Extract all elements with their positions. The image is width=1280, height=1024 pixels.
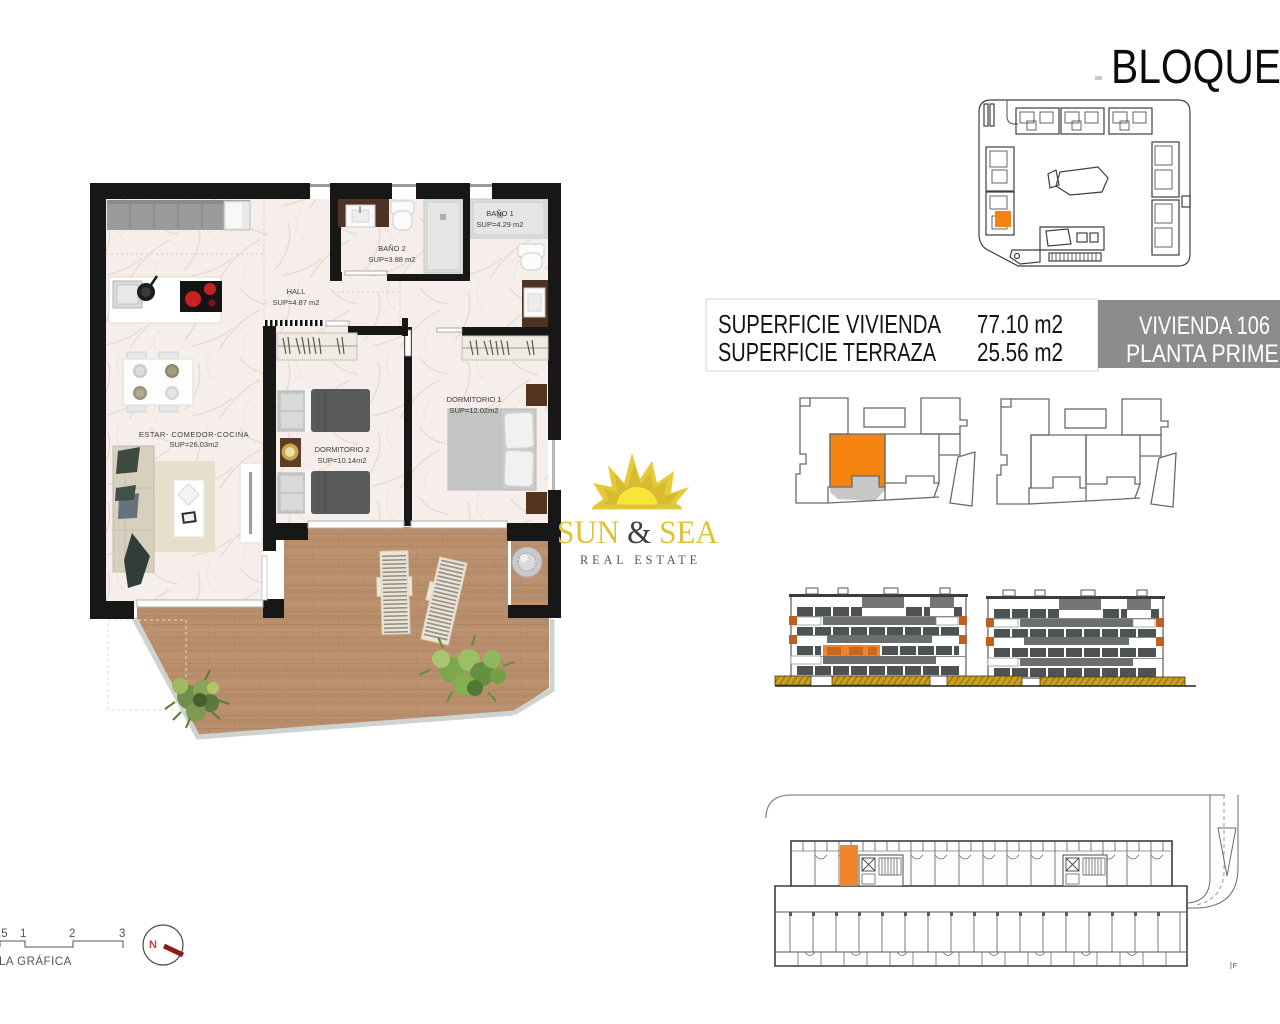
- svg-text:PLANTA PRIMERA: PLANTA PRIMERA: [1126, 340, 1280, 368]
- svg-text:SUP=10.14m2: SUP=10.14m2: [318, 456, 367, 465]
- svg-text:BAÑO 2: BAÑO 2: [378, 244, 406, 253]
- svg-text:BAÑO 1: BAÑO 1: [486, 209, 514, 218]
- svg-text:N: N: [149, 939, 157, 951]
- svg-text:DORMITORIO 1: DORMITORIO 1: [447, 395, 502, 404]
- svg-text:1: 1: [20, 928, 26, 940]
- svg-text:⌈F: ⌈F: [1230, 962, 1237, 970]
- svg-text:SUN & SEA: SUN & SEA: [557, 515, 718, 551]
- svg-text:VIVIENDA 106: VIVIENDA 106: [1139, 312, 1270, 340]
- svg-text:ESTAR- COMEDOR-COCINA: ESTAR- COMEDOR-COCINA: [139, 430, 249, 439]
- svg-text:77.10 m2: 77.10 m2: [977, 309, 1063, 339]
- svg-text:SUPERFICIE TERRAZA: SUPERFICIE TERRAZA: [718, 337, 937, 367]
- svg-text:SUP=12.02m2: SUP=12.02m2: [450, 406, 499, 415]
- svg-text:SUP=26.03m2: SUP=26.03m2: [170, 440, 219, 449]
- svg-text:SUP=4.87 m2: SUP=4.87 m2: [273, 298, 320, 307]
- svg-text:SUP=4.29 m2: SUP=4.29 m2: [477, 220, 524, 229]
- svg-text:,5: ,5: [0, 928, 8, 940]
- svg-text:REAL ESTATE: REAL ESTATE: [580, 553, 701, 567]
- svg-text:SUP=3.88 m2: SUP=3.88 m2: [369, 255, 416, 264]
- svg-text:3: 3: [119, 928, 125, 940]
- svg-text:BLOQUE: BLOQUE: [1111, 41, 1280, 94]
- svg-text:SUPERFICIE VIVIENDA: SUPERFICIE VIVIENDA: [718, 309, 942, 339]
- svg-text:25.56 m2: 25.56 m2: [977, 337, 1063, 367]
- svg-text:2: 2: [69, 928, 75, 940]
- svg-text:DORMITORIO 2: DORMITORIO 2: [315, 445, 370, 454]
- svg-text:LA GRÁFICA: LA GRÁFICA: [0, 955, 72, 968]
- svg-text:HALL: HALL: [287, 287, 306, 296]
